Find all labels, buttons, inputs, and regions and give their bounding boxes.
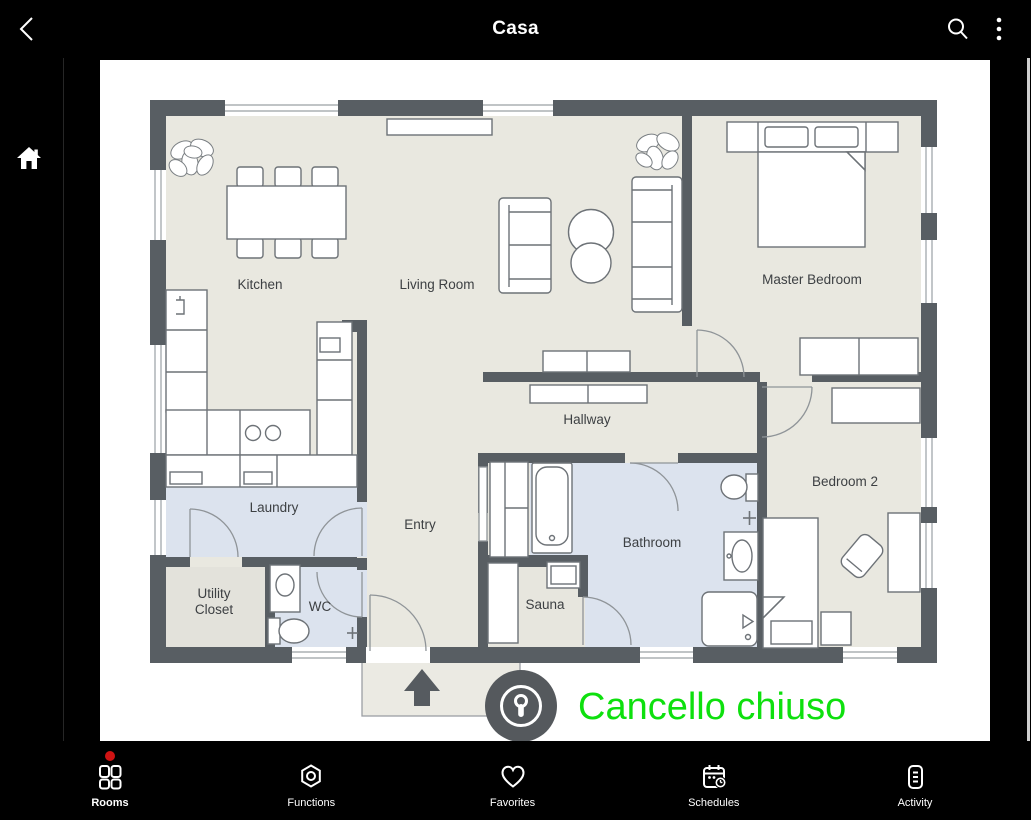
overflow-menu-icon xyxy=(987,16,1011,42)
stove-burner xyxy=(266,426,281,441)
dining-chair xyxy=(275,238,301,258)
window-bottom-1 xyxy=(292,647,346,663)
floorplan-svg: Kitchen Living Room Master Bedroom Hallw… xyxy=(100,60,990,741)
dryer-icon xyxy=(244,472,272,484)
window-right-2 xyxy=(921,240,937,303)
bottom-navigation: Rooms Functions Favorites xyxy=(0,741,1031,820)
kitchen-counter-left xyxy=(166,290,207,412)
rooms-grid-icon xyxy=(95,762,125,792)
wardrobe xyxy=(832,388,920,423)
dining-table xyxy=(227,186,346,239)
room-tabs-sidebar xyxy=(0,58,100,741)
dining-chair xyxy=(312,238,338,258)
room-label-sauna: Sauna xyxy=(525,597,565,612)
bathroom-sink xyxy=(724,532,758,580)
hallway-furniture xyxy=(530,385,647,403)
window-top-living xyxy=(483,100,553,116)
search-button[interactable] xyxy=(938,9,978,49)
stove-burner xyxy=(246,426,261,441)
washing-machine xyxy=(702,592,757,646)
room-label-utility-1: Utility xyxy=(198,586,231,601)
window-right-1 xyxy=(921,147,937,213)
nav-label: Schedules xyxy=(688,797,739,809)
window-left-2 xyxy=(150,345,166,453)
dining-chair xyxy=(275,167,301,187)
dining-chair xyxy=(237,238,263,258)
floorplan-canvas: Kitchen Living Room Master Bedroom Hallw… xyxy=(100,60,990,741)
kitchen-counter-bottom xyxy=(166,410,310,455)
pillow xyxy=(815,127,858,147)
room-label-master-bedroom: Master Bedroom xyxy=(762,272,862,287)
nav-label: Activity xyxy=(898,797,933,809)
coffee-table-round xyxy=(571,243,611,283)
dining-chair xyxy=(312,167,338,187)
window-left-3 xyxy=(150,500,166,555)
sidebar-item-home[interactable] xyxy=(15,144,43,172)
favorites-heart-icon xyxy=(498,762,528,792)
room-area-laundry[interactable] xyxy=(166,487,367,557)
top-app-bar: Casa xyxy=(0,0,1031,58)
wc-sink xyxy=(270,565,300,612)
nav-item-schedules[interactable]: Schedules xyxy=(664,741,764,820)
wc-toilet xyxy=(268,618,309,644)
kitchen-appliance xyxy=(320,338,340,352)
nav-item-functions[interactable]: Functions xyxy=(261,741,361,820)
app-window: Casa xyxy=(0,0,1031,820)
back-chevron-icon xyxy=(16,16,40,42)
room-label-laundry: Laundry xyxy=(250,500,299,515)
notification-badge xyxy=(105,751,115,761)
pillow xyxy=(765,127,808,147)
nav-item-activity[interactable]: Activity xyxy=(865,741,965,820)
room-label-hallway: Hallway xyxy=(563,412,611,427)
room-label-entry: Entry xyxy=(404,517,436,532)
status-message: Cancello chiuso xyxy=(578,686,846,728)
window-right-3 xyxy=(921,438,937,507)
nav-item-rooms[interactable]: Rooms xyxy=(60,741,160,820)
room-label-wc: WC xyxy=(309,599,332,614)
tv-bench xyxy=(543,351,630,372)
dresser xyxy=(800,338,918,375)
room-label-living-room: Living Room xyxy=(399,277,474,292)
activity-log-icon xyxy=(900,762,930,792)
schedules-calendar-icon xyxy=(699,762,729,792)
front-door-opening xyxy=(366,647,430,663)
sidebar-divider xyxy=(63,58,64,741)
dining-chair xyxy=(237,167,263,187)
search-icon xyxy=(946,17,970,41)
sauna-bench xyxy=(488,563,518,643)
nav-item-favorites[interactable]: Favorites xyxy=(463,741,563,820)
nightstand xyxy=(821,612,851,645)
window-top-kitchen xyxy=(225,100,338,116)
window-left-1 xyxy=(150,170,166,240)
entry-closet-door xyxy=(479,467,487,541)
bed-head xyxy=(727,122,898,152)
master-bed xyxy=(758,152,865,247)
gate-status: Cancello chiuso xyxy=(485,670,846,741)
wall-shelf xyxy=(387,119,492,135)
nav-label: Functions xyxy=(287,797,335,809)
overflow-menu-button[interactable] xyxy=(979,9,1019,49)
room-label-kitchen: Kitchen xyxy=(237,277,282,292)
window-bottom-3 xyxy=(843,647,897,663)
nav-label: Rooms xyxy=(91,797,128,809)
functions-hexagon-icon xyxy=(296,762,326,792)
sofa-left xyxy=(499,198,551,293)
bathroom-cabinet xyxy=(490,462,528,557)
room-label-bedroom2: Bedroom 2 xyxy=(812,474,878,489)
page-title: Casa xyxy=(0,18,1031,40)
bed-drawer xyxy=(771,621,812,644)
lock-fab[interactable] xyxy=(485,670,557,741)
nav-label: Favorites xyxy=(490,797,535,809)
home-icon xyxy=(15,144,43,172)
window-bottom-2 xyxy=(640,647,693,663)
room-label-bathroom: Bathroom xyxy=(623,535,682,550)
bathtub xyxy=(532,463,572,553)
room-label-utility-2: Closet xyxy=(195,602,234,617)
back-button[interactable] xyxy=(8,9,48,49)
sauna-heater xyxy=(547,562,580,588)
washer-icon xyxy=(170,472,202,484)
window-right-4 xyxy=(921,523,937,588)
desk xyxy=(888,513,920,592)
scrollbar[interactable] xyxy=(1027,58,1030,741)
sofa-right xyxy=(632,177,682,312)
toilet xyxy=(721,474,758,501)
